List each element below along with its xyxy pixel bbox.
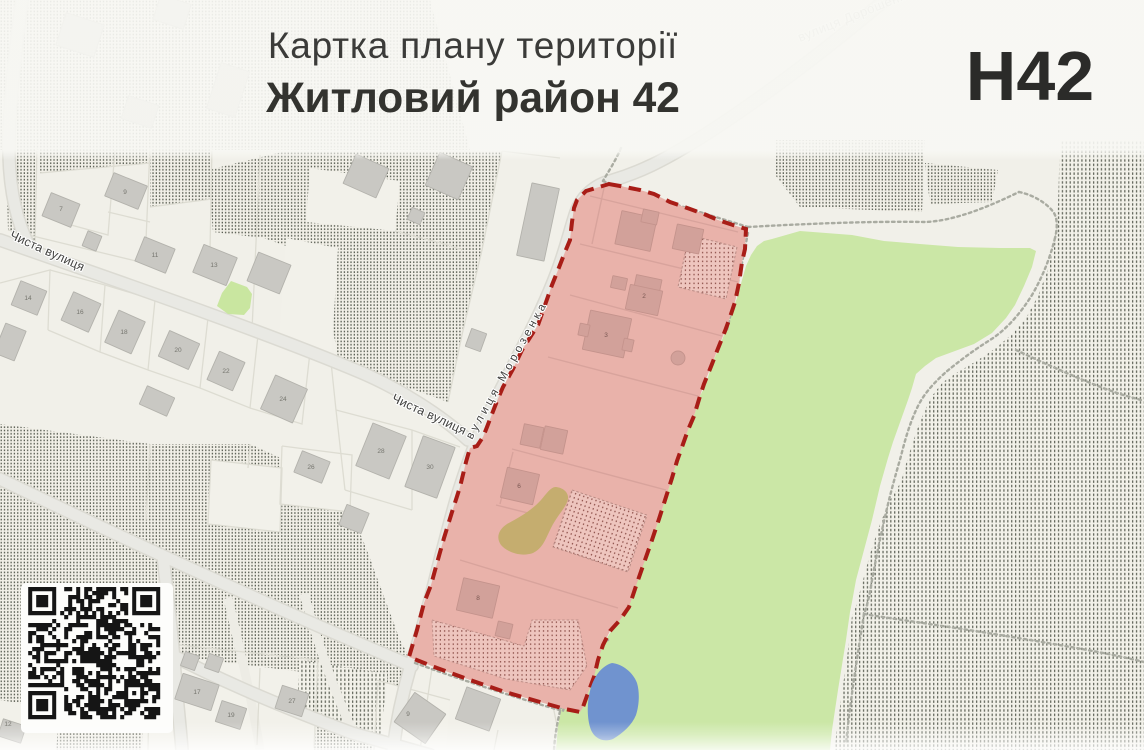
svg-text:22: 22 <box>222 368 230 375</box>
svg-text:14: 14 <box>24 295 32 302</box>
svg-text:26: 26 <box>307 464 315 471</box>
svg-text:9: 9 <box>406 711 410 718</box>
svg-text:24: 24 <box>279 396 287 403</box>
svg-text:16: 16 <box>76 309 84 316</box>
svg-text:2: 2 <box>642 293 646 300</box>
svg-text:9: 9 <box>123 189 127 196</box>
svg-text:7: 7 <box>59 206 63 213</box>
svg-text:20: 20 <box>174 347 182 354</box>
svg-text:Житловий район 42: Житловий район 42 <box>265 75 680 122</box>
svg-text:11: 11 <box>152 252 159 259</box>
svg-text:18: 18 <box>120 329 128 336</box>
svg-text:19: 19 <box>227 712 235 719</box>
svg-text:13: 13 <box>210 262 218 269</box>
svg-text:17: 17 <box>193 689 201 696</box>
svg-text:8: 8 <box>476 595 480 602</box>
svg-text:27: 27 <box>288 698 296 705</box>
svg-text:3: 3 <box>604 332 608 339</box>
svg-text:28: 28 <box>377 448 385 455</box>
svg-text:30: 30 <box>426 464 434 471</box>
svg-text:Картка плану території: Картка плану території <box>268 25 678 66</box>
svg-text:6: 6 <box>517 483 521 490</box>
svg-text:Н42: Н42 <box>966 37 1094 115</box>
